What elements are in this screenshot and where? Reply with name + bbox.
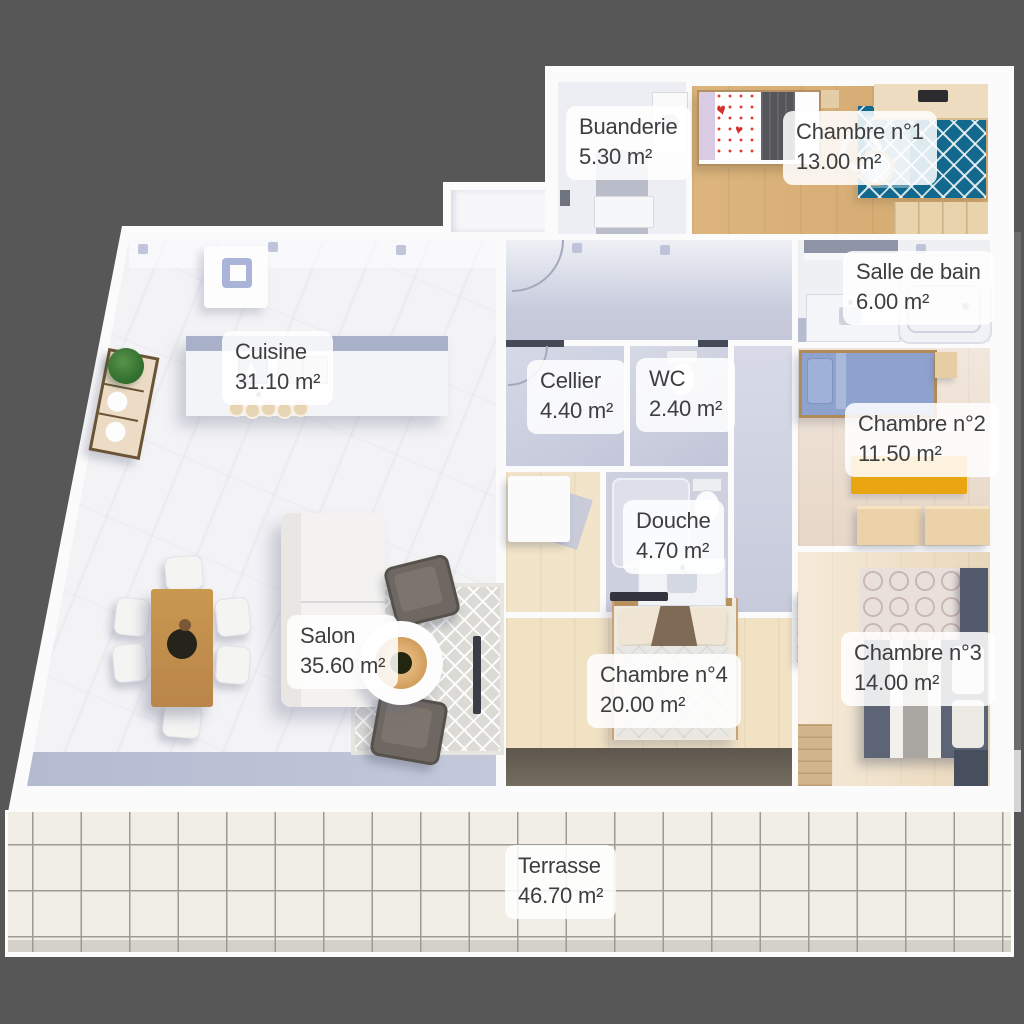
- wall-oven-unit: [204, 246, 268, 308]
- ceiling-spot: [138, 244, 148, 254]
- room-label-chambre-4: Chambre n°4 20.00 m²: [587, 654, 741, 728]
- laptop: [918, 90, 948, 102]
- chambre4-dark-band: [506, 748, 792, 786]
- room-area: 11.50 m²: [858, 439, 986, 469]
- room-area: 31.10 m²: [235, 367, 320, 397]
- entrance-vestibule-floor: [451, 190, 557, 232]
- room-name: Douche: [636, 506, 711, 536]
- room-label-chambre-1: Chambre n°1 13.00 m²: [783, 111, 937, 185]
- room-label-wc: WC 2.40 m²: [636, 358, 735, 432]
- dining-chair: [214, 596, 252, 637]
- room-label-salon: Salon 35.60 m²: [287, 615, 398, 689]
- room-label-terrasse: Terrasse 46.70 m²: [505, 845, 616, 919]
- terrace-edge-strip: [8, 940, 1011, 952]
- room-area: 13.00 m²: [796, 147, 924, 177]
- room-name: Buanderie: [579, 112, 678, 142]
- tv: [473, 636, 481, 714]
- room-label-cuisine: Cuisine 31.10 m²: [222, 331, 333, 405]
- shelf-divider: [99, 412, 139, 422]
- room-name: Chambre n°3: [854, 638, 982, 668]
- room-name: Chambre n°1: [796, 117, 924, 147]
- room-name: Chambre n°2: [858, 409, 986, 439]
- armchair-cushion: [380, 702, 432, 749]
- towel-bar: [610, 592, 668, 601]
- ceiling-spot: [572, 243, 582, 253]
- ceiling-spot: [396, 245, 406, 255]
- room-area: 6.00 m²: [856, 287, 981, 317]
- dining-chair: [111, 643, 148, 684]
- ceiling-spot: [268, 242, 278, 252]
- sink-basin: [667, 571, 697, 593]
- bed-sheet-lavender: [699, 92, 715, 160]
- room-area: 4.40 m²: [540, 396, 613, 426]
- room-area: 14.00 m²: [854, 668, 982, 698]
- corridor-floor: [734, 346, 792, 612]
- room-label-chambre-2: Chambre n°2 11.50 m²: [845, 403, 999, 477]
- dining-table: [151, 589, 213, 707]
- nightstand: [821, 90, 839, 108]
- room-label-chambre-3: Chambre n°3 14.00 m²: [841, 632, 995, 706]
- room-area: 20.00 m²: [600, 690, 728, 720]
- door-lintel: [698, 340, 728, 347]
- ceiling-spot: [660, 245, 670, 255]
- floor-light-band: [129, 240, 496, 268]
- room-label-buanderie: Buanderie 5.30 m²: [566, 106, 691, 180]
- room-area: 5.30 m²: [579, 142, 678, 172]
- nightstand: [935, 352, 957, 378]
- bed-fold: [836, 353, 846, 409]
- room-name: Chambre n°4: [600, 660, 728, 690]
- wood-bench: [798, 724, 832, 786]
- closet: [894, 202, 988, 234]
- utility-box: [560, 190, 570, 206]
- armchair-cushion: [393, 565, 443, 612]
- room-name: Cuisine: [235, 337, 320, 367]
- dresser: [925, 506, 989, 545]
- room-label-salle-de-bain: Salle de bain 6.00 m²: [843, 251, 994, 325]
- room-name: Salle de bain: [856, 257, 981, 287]
- wall-shelf: [960, 568, 988, 640]
- dining-chair: [164, 555, 204, 592]
- room-area: 2.40 m²: [649, 394, 722, 424]
- room-label-cellier: Cellier 4.40 m²: [527, 360, 626, 434]
- sofa-cushion-gap: [301, 601, 385, 603]
- exterior-edge-highlight: [1014, 750, 1021, 812]
- room-name: Terrasse: [518, 851, 603, 881]
- plate: [106, 390, 129, 413]
- bed-pillow: [807, 358, 833, 404]
- room-label-douche: Douche 4.70 m²: [623, 500, 724, 574]
- room-name: WC: [649, 364, 722, 394]
- wardrobe: [508, 476, 570, 542]
- shelf-divider: [104, 383, 144, 393]
- oven-window: [230, 265, 246, 281]
- floor-plan: ♥ ♥: [0, 0, 1024, 1024]
- bed-pillow: [952, 700, 984, 748]
- laundry-counter: [594, 196, 654, 228]
- room-area: 35.60 m²: [300, 651, 385, 681]
- table-object: [179, 619, 191, 631]
- dining-chair: [162, 702, 203, 739]
- room-name: Salon: [300, 621, 385, 651]
- room-area: 4.70 m²: [636, 536, 711, 566]
- room-name: Cellier: [540, 366, 613, 396]
- room-area: 46.70 m²: [518, 881, 603, 911]
- dark-cabinet: [954, 750, 988, 786]
- dining-chair: [113, 596, 151, 637]
- fruit-bowl: [167, 629, 197, 659]
- dresser: [857, 506, 921, 545]
- exterior-edge-strip: [1014, 232, 1021, 812]
- dining-chair: [215, 645, 252, 685]
- plate: [104, 420, 127, 443]
